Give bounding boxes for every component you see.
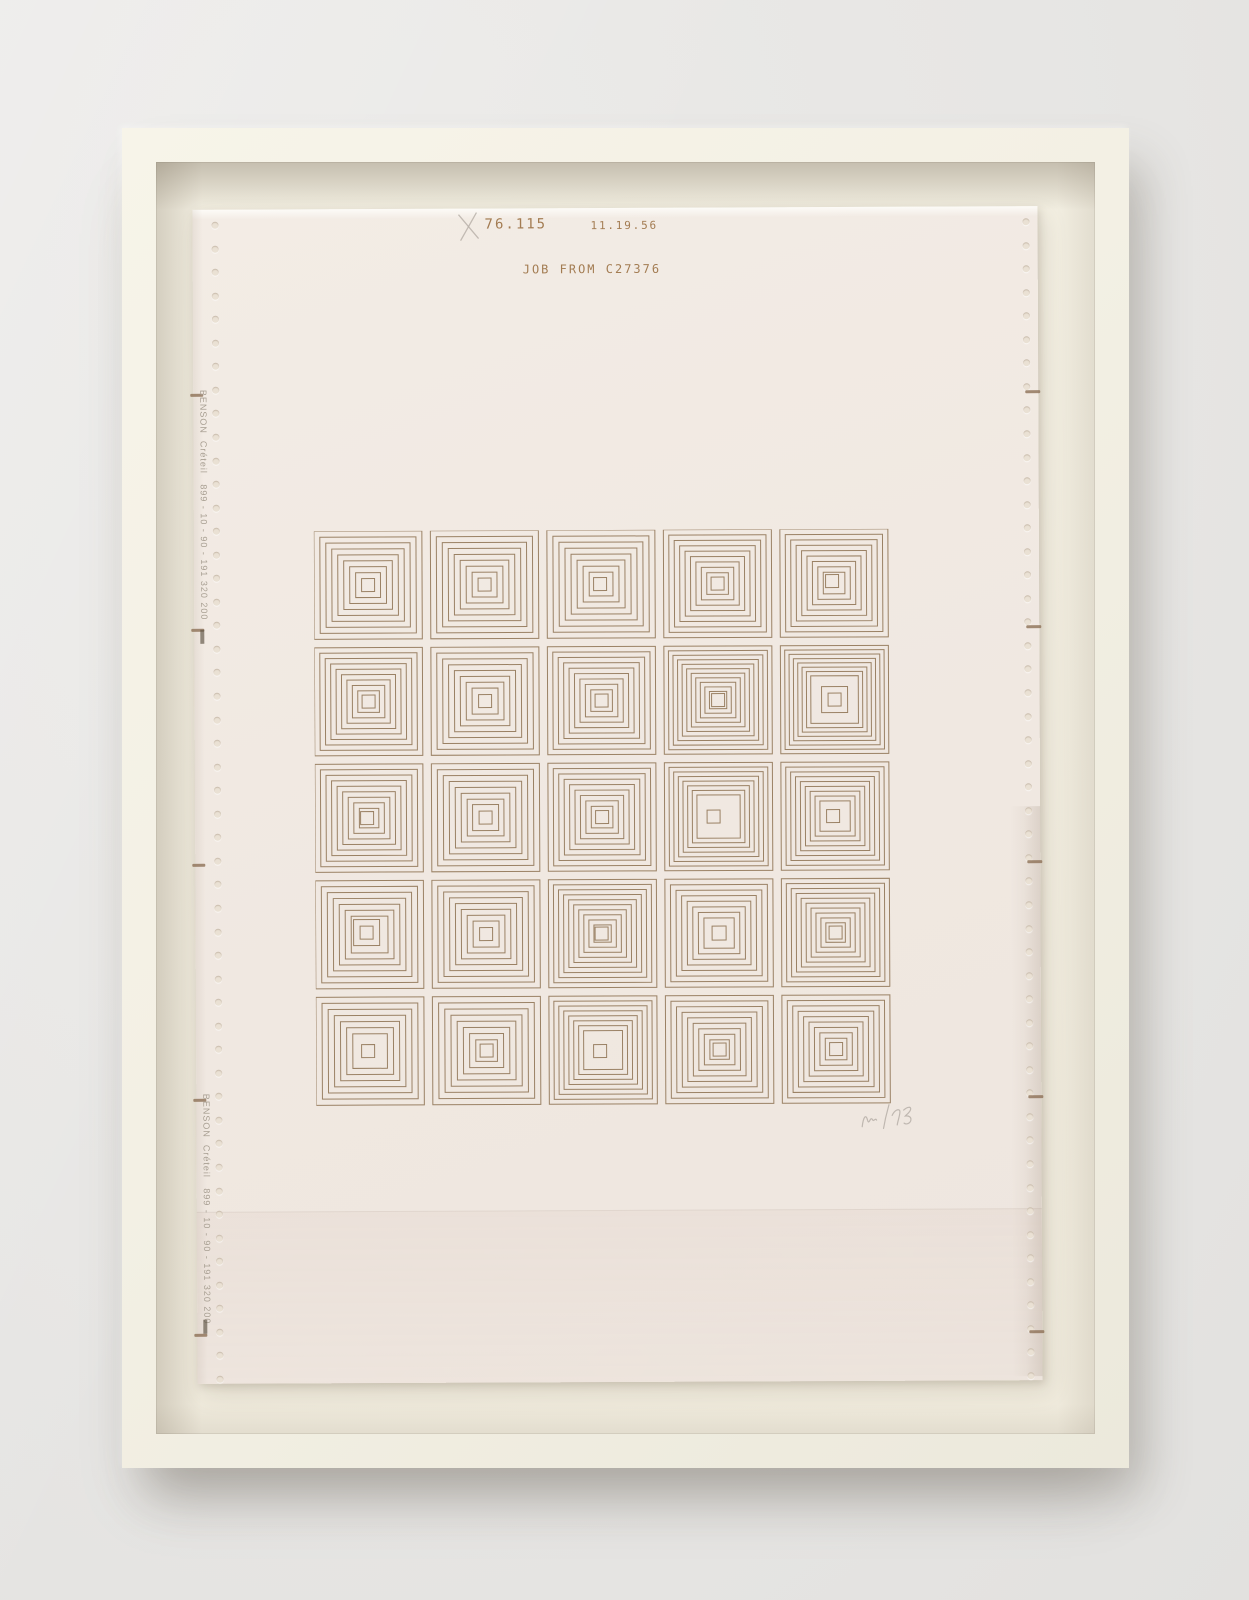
sprocket-hole [1024, 501, 1031, 508]
sprocket-hole [1024, 666, 1031, 673]
sprocket-hole [1025, 783, 1032, 790]
sprocket-hole [1026, 1066, 1033, 1073]
sprocket-hole [1026, 972, 1033, 979]
sprocket-hole [216, 1164, 223, 1171]
sprocket-hole [215, 952, 222, 959]
sprocket-hole [215, 975, 222, 982]
fold-mark [1028, 1095, 1043, 1098]
sprocket-hole [212, 292, 219, 299]
concentric-square-cell [431, 763, 539, 871]
sprocket-hole [214, 858, 221, 865]
sprocket-hole [215, 1093, 222, 1100]
sprocket-hole [214, 787, 221, 794]
fold-mark [1027, 860, 1042, 863]
gallery-wall: BENSON Créteil 899 - 10 - 90 - 191 320 2… [0, 0, 1249, 1600]
sprocket-hole [216, 1281, 223, 1288]
concentric-square-cell [665, 879, 773, 987]
concentric-square-cell [314, 647, 422, 755]
concentric-squares-grid [314, 529, 892, 1107]
sprocket-hole [1024, 454, 1031, 461]
sprocket-hole [1023, 383, 1030, 390]
sprocket-hole [217, 1376, 224, 1383]
sprocket-hole [1025, 736, 1032, 743]
sprocket-hole [1024, 642, 1031, 649]
sprocket-hole [1023, 359, 1030, 366]
sprocket-hole [1024, 524, 1031, 531]
fold-mark [1026, 625, 1041, 628]
sprocket-hole [215, 1022, 222, 1029]
sprocket-hole [216, 1140, 223, 1147]
sprocket-hole [213, 599, 220, 606]
date-code: 11.19.56 [590, 219, 657, 232]
concentric-square-cell [432, 880, 540, 988]
concentric-square-cell [549, 996, 657, 1104]
sprocket-hole [1023, 242, 1030, 249]
sprocket-hole [1024, 548, 1031, 555]
concentric-square-cell [782, 995, 890, 1103]
sprocket-hole [1023, 265, 1030, 272]
concentric-square-cell [316, 997, 424, 1105]
picture-frame: BENSON Créteil 899 - 10 - 90 - 191 320 2… [122, 128, 1129, 1468]
edge-text-end-mark [200, 630, 204, 644]
sprocket-hole [214, 905, 221, 912]
sprocket-hole [1023, 336, 1030, 343]
concentric-square-cell [781, 878, 889, 986]
sprocket-hole [212, 245, 219, 252]
sprocket-hole [215, 999, 222, 1006]
sprocket-hole [215, 1046, 222, 1053]
sprocket-hole [1025, 713, 1032, 720]
sprocket-hole [212, 387, 219, 394]
sprocket-hole [1023, 407, 1030, 414]
sprocket-hole [213, 528, 220, 535]
fold-mark [192, 864, 205, 867]
sprocket-hole [212, 410, 219, 417]
paper-fold-shading [197, 1208, 1043, 1384]
sprocket-hole [213, 575, 220, 582]
concentric-square-cell [780, 529, 888, 637]
concentric-square-cell [548, 763, 656, 871]
sprocket-hole [1023, 430, 1030, 437]
sprocket-hole [1026, 1113, 1033, 1120]
sprocket-hole [1028, 1372, 1035, 1379]
concentric-square-cell [547, 646, 655, 754]
sprocket-hole [1024, 571, 1031, 578]
sprocket-hole [216, 1234, 223, 1241]
sprocket-hole [1024, 595, 1031, 602]
sprocket-hole [1027, 1278, 1034, 1285]
concentric-square-cell [315, 880, 423, 988]
sprocket-hole [214, 834, 221, 841]
sprocket-hole [216, 1329, 223, 1336]
job-line: JOB FROM C27376 [523, 262, 661, 277]
sprocket-hole [215, 1117, 222, 1124]
sprocket-hole [213, 622, 220, 629]
sprocket-hole [1027, 1184, 1034, 1191]
sprocket-hole [213, 646, 220, 653]
sprocket-hole [214, 740, 221, 747]
frame-recess: BENSON Créteil 899 - 10 - 90 - 191 320 2… [156, 162, 1095, 1434]
sprocket-hole [212, 363, 219, 370]
pencil-x-mark [454, 209, 484, 243]
sprocket-hole [216, 1187, 223, 1194]
sprocket-hole [214, 763, 221, 770]
sprocket-hole [1026, 925, 1033, 932]
concentric-square-cell [547, 530, 655, 638]
fold-mark [1025, 390, 1040, 393]
sprocket-hole [212, 434, 219, 441]
sprocket-hole [1025, 807, 1032, 814]
concentric-square-cell [431, 647, 539, 755]
sprocket-hole [213, 457, 220, 464]
fold-mark [1029, 1330, 1044, 1333]
concentric-square-cell [781, 762, 889, 870]
concentric-square-cell [315, 764, 423, 872]
sprocket-hole [212, 339, 219, 346]
sprocket-hole [1025, 760, 1032, 767]
concentric-square-cell [314, 531, 422, 639]
sprocket-hole [1024, 477, 1031, 484]
artist-signature [856, 1100, 920, 1136]
sprocket-hole [212, 316, 219, 323]
concentric-square-cell [663, 529, 771, 637]
sprocket-hole [213, 481, 220, 488]
sprocket-hole [1026, 1019, 1033, 1026]
sprocket-hole [212, 269, 219, 276]
sprocket-hole [215, 1070, 222, 1077]
sprocket-hole [1025, 689, 1032, 696]
sprocket-hole [214, 716, 221, 723]
plotter-paper: BENSON Créteil 899 - 10 - 90 - 191 320 2… [192, 206, 1042, 1384]
sprocket-hole-column-left [192, 206, 1037, 210]
sprocket-hole [215, 928, 222, 935]
sprocket-hole [213, 669, 220, 676]
concentric-square-cell [664, 762, 772, 870]
catalog-number: 76.115 [484, 216, 547, 232]
paper-edge-manufacturer-text: BENSON Créteil 899 - 10 - 90 - 191 320 2… [194, 390, 209, 642]
concentric-square-cell [430, 530, 538, 638]
sprocket-hole [213, 504, 220, 511]
sprocket-hole [1026, 948, 1033, 955]
sprocket-hole [213, 551, 220, 558]
sprocket-hole [1027, 1231, 1034, 1238]
sprocket-hole-column-right [192, 206, 1037, 210]
sprocket-hole [1022, 218, 1029, 225]
edge-text-end-mark [203, 1320, 207, 1334]
concentric-square-cell [665, 995, 773, 1103]
concentric-square-cell [664, 646, 772, 754]
sprocket-hole [214, 693, 221, 700]
sprocket-hole [211, 222, 218, 229]
concentric-square-cell [780, 645, 888, 753]
sprocket-hole [1023, 312, 1030, 319]
concentric-square-cell [548, 879, 656, 987]
sprocket-hole [1025, 901, 1032, 908]
concentric-square-cell [432, 996, 540, 1104]
paper-edge-manufacturer-text: BENSON Créteil 899 - 10 - 90 - 191 320 2… [197, 1094, 212, 1346]
sprocket-hole [214, 810, 221, 817]
sprocket-hole [1027, 1160, 1034, 1167]
sprocket-hole [1023, 289, 1030, 296]
sprocket-hole [214, 881, 221, 888]
fold-marks [192, 206, 1037, 210]
